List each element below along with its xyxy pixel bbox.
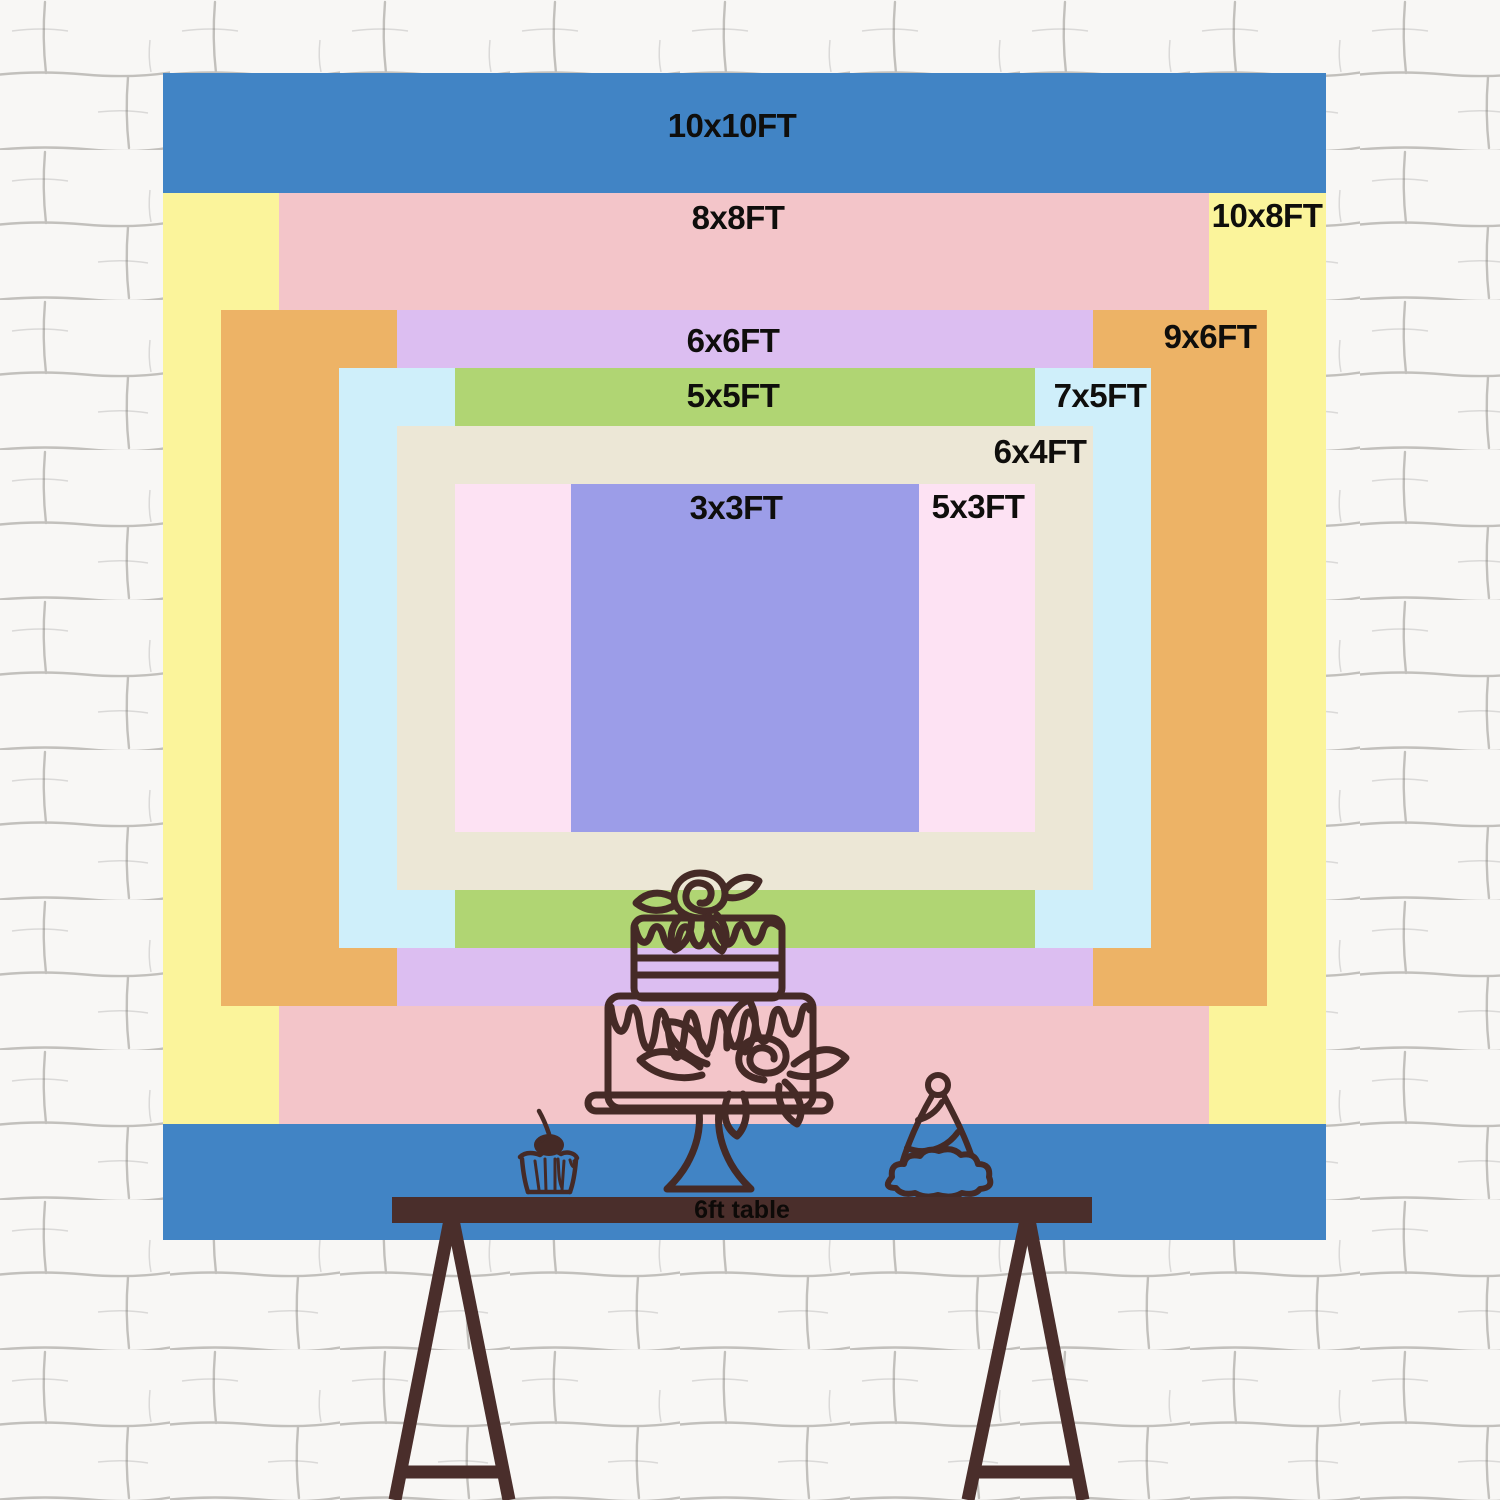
size-label-3x3ft: 3x3FT <box>690 489 783 527</box>
size-label-10x8ft: 10x8FT <box>1212 197 1323 235</box>
size-label-6x6ft: 6x6FT <box>687 322 780 360</box>
size-rect-3x3ft <box>571 484 919 832</box>
party-hat-illustration <box>882 1062 994 1200</box>
table-top: 6ft table <box>392 1197 1092 1223</box>
size-label-5x5ft: 5x5FT <box>687 377 780 415</box>
size-label-10x10ft: 10x10FT <box>668 107 797 145</box>
table-size-label: 6ft table <box>694 1196 790 1224</box>
birthday-cake-illustration <box>578 857 888 1197</box>
table-legs <box>370 1218 1130 1500</box>
size-label-5x3ft: 5x3FT <box>932 488 1025 526</box>
size-label-6x4ft: 6x4FT <box>994 433 1087 471</box>
size-label-9x6ft: 9x6FT <box>1164 318 1257 356</box>
cupcake-illustration <box>513 1106 583 1198</box>
size-label-7x5ft: 7x5FT <box>1054 377 1147 415</box>
scene: 10x10FT 8x8FT 10x8FT 6x6FT 9x6FT 5x5FT 7… <box>0 0 1500 1500</box>
size-label-8x8ft: 8x8FT <box>692 199 785 237</box>
